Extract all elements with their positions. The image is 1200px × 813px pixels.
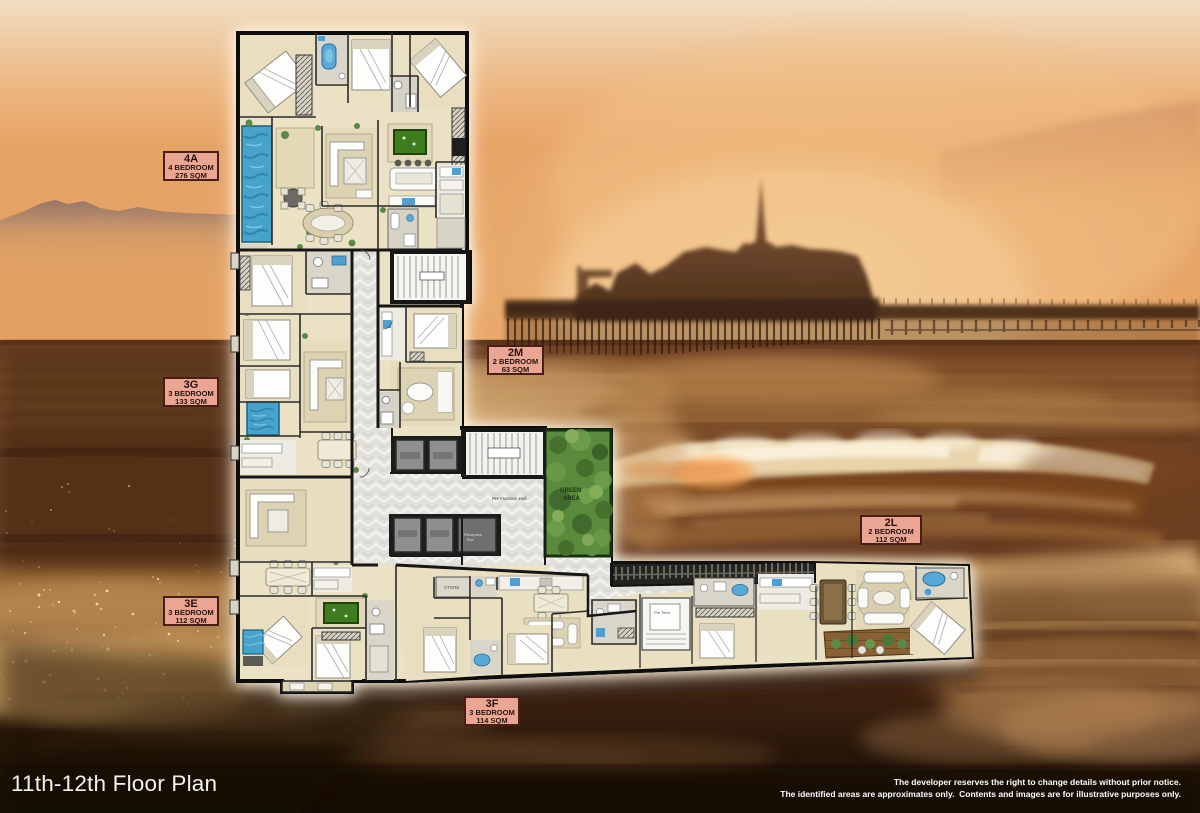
svg-text:Pre Teen: Pre Teen <box>654 610 670 615</box>
svg-text:AREA: AREA <box>563 496 581 502</box>
svg-text:Box: Box <box>467 537 474 542</box>
svg-text:Pre Function Hall: Pre Function Hall <box>492 496 527 501</box>
svg-text:STORE: STORE <box>444 585 459 590</box>
svg-text:GREEN: GREEN <box>560 488 581 494</box>
